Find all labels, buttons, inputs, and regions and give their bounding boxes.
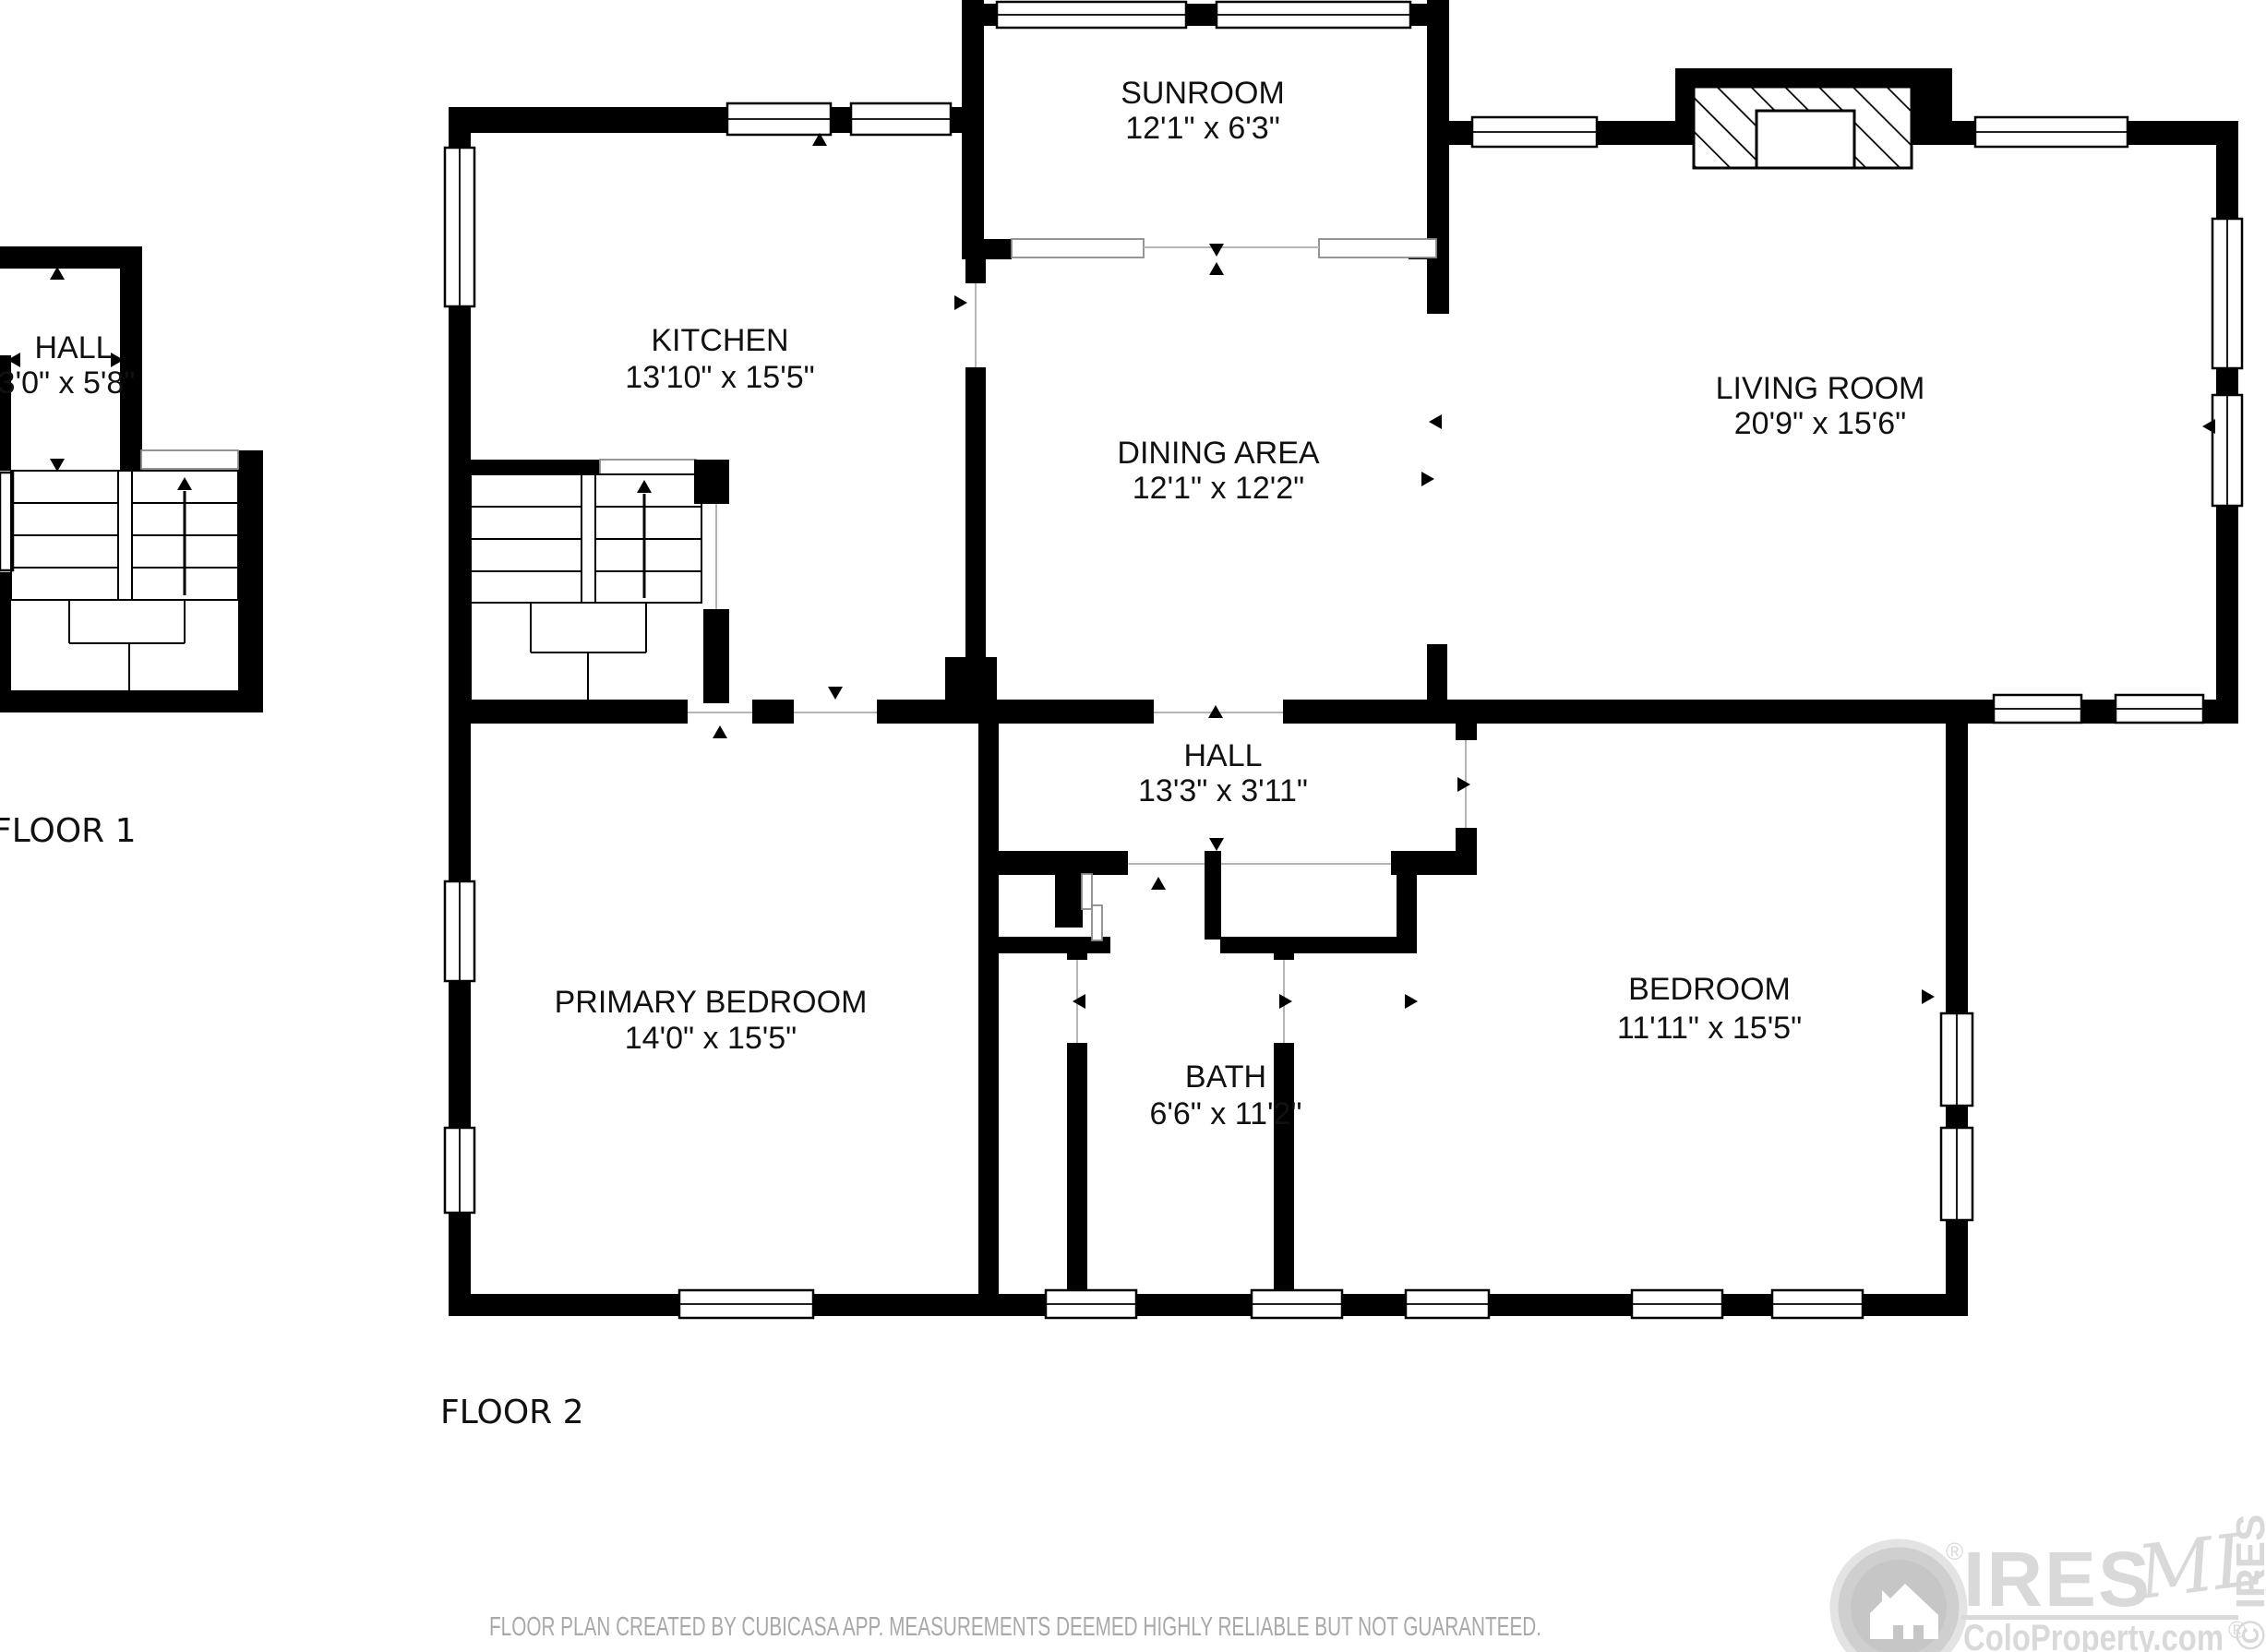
brand-registered-mark: ® xyxy=(1946,1538,1963,1565)
room-label-living-room: LIVING ROOM xyxy=(1716,371,1925,406)
floor1-staircase xyxy=(11,471,238,690)
room-label-sunroom: SUNROOM xyxy=(1121,76,1285,111)
floor-plan-drawing: SUNROOM 12'1" x 6'3" KITCHEN 13'10" x 15… xyxy=(0,0,2266,1652)
door-arrow-icon xyxy=(1405,994,1418,1009)
floor2-label: FLOOR 2 xyxy=(440,1394,584,1431)
room-label-bedroom: BEDROOM xyxy=(1628,972,1791,1007)
door-arrow-icon xyxy=(713,725,727,738)
room-dims-bedroom: 11'11" x 15'5" xyxy=(1617,1011,1802,1046)
door-arrow-icon xyxy=(954,295,967,310)
room-dims-hall: 13'3" x 3'11" xyxy=(1138,773,1308,808)
door-arrow-icon xyxy=(1421,472,1434,486)
floor2-room-labels: SUNROOM 12'1" x 6'3" KITCHEN 13'10" x 15… xyxy=(555,76,1925,1131)
door-arrow-icon xyxy=(1279,994,1292,1009)
door-arrow-icon xyxy=(1429,414,1442,429)
door-arrow-icon xyxy=(1922,989,1935,1004)
room-dims-dining-area: 12'1" x 12'2" xyxy=(1133,471,1304,506)
floor2-plan: SUNROOM 12'1" x 6'3" KITCHEN 13'10" x 15… xyxy=(440,0,2242,1431)
door-arrow-icon xyxy=(1209,244,1224,257)
disclaimer-text: FLOOR PLAN CREATED BY CUBICASA APP. MEAS… xyxy=(489,1612,1541,1642)
room-dims-living-room: 20'9" x 15'6" xyxy=(1734,406,1906,441)
door-arrow-icon xyxy=(1073,994,1085,1009)
room-dims-primary-bedroom: 14'0" x 15'5" xyxy=(625,1021,797,1056)
floor1-room-labels: HALL 3'0" x 5'8" xyxy=(0,330,135,401)
room-dims-hall-f1: 3'0" x 5'8" xyxy=(0,365,135,401)
room-dims-kitchen: 13'10" x 15'5" xyxy=(625,360,814,395)
door-arrow-icon xyxy=(1209,838,1224,851)
room-label-primary-bedroom: PRIMARY BEDROOM xyxy=(555,985,868,1020)
door-arrow-icon xyxy=(1209,262,1224,275)
door-arrow-icon xyxy=(50,267,65,280)
room-dims-sunroom: 12'1" x 6'3" xyxy=(1125,111,1280,146)
site-text: ColoProperty.com xyxy=(1963,1618,2224,1652)
room-label-kitchen: KITCHEN xyxy=(651,323,788,358)
room-dims-bath: 6'6" x 11'2" xyxy=(1149,1096,1301,1131)
stairs-up-arrow-icon xyxy=(637,480,652,493)
door-arrow-icon xyxy=(1457,777,1470,792)
brand-text: IRES xyxy=(1963,1536,2152,1622)
room-label-dining-area: DINING AREA xyxy=(1117,436,1319,471)
room-label-hall: HALL xyxy=(1183,738,1262,773)
door-arrow-icon xyxy=(1151,877,1166,890)
door-arrow-icon xyxy=(2202,419,2215,434)
watermark-logo: ® IRES MLS ColoProperty.com ® © IRES xyxy=(1834,1509,2266,1652)
fireplace xyxy=(1675,68,1952,168)
room-label-bath: BATH xyxy=(1185,1059,1266,1095)
floor1-plan: HALL 3'0" x 5'8" FLOOR 1 xyxy=(0,246,263,850)
door-arrow-icon xyxy=(50,459,65,472)
stairs-up-arrow-icon xyxy=(177,477,192,490)
door-arrow-icon xyxy=(828,687,843,700)
floor-plan-page: { "floors": [ { "label": "FLOOR 1", "roo… xyxy=(0,0,2266,1652)
room-label-hall-f1: HALL xyxy=(34,330,113,365)
edge-copyright-text: © IRES xyxy=(2228,1514,2266,1650)
floor1-label: FLOOR 1 xyxy=(0,812,137,850)
floor2-staircase xyxy=(460,460,729,703)
